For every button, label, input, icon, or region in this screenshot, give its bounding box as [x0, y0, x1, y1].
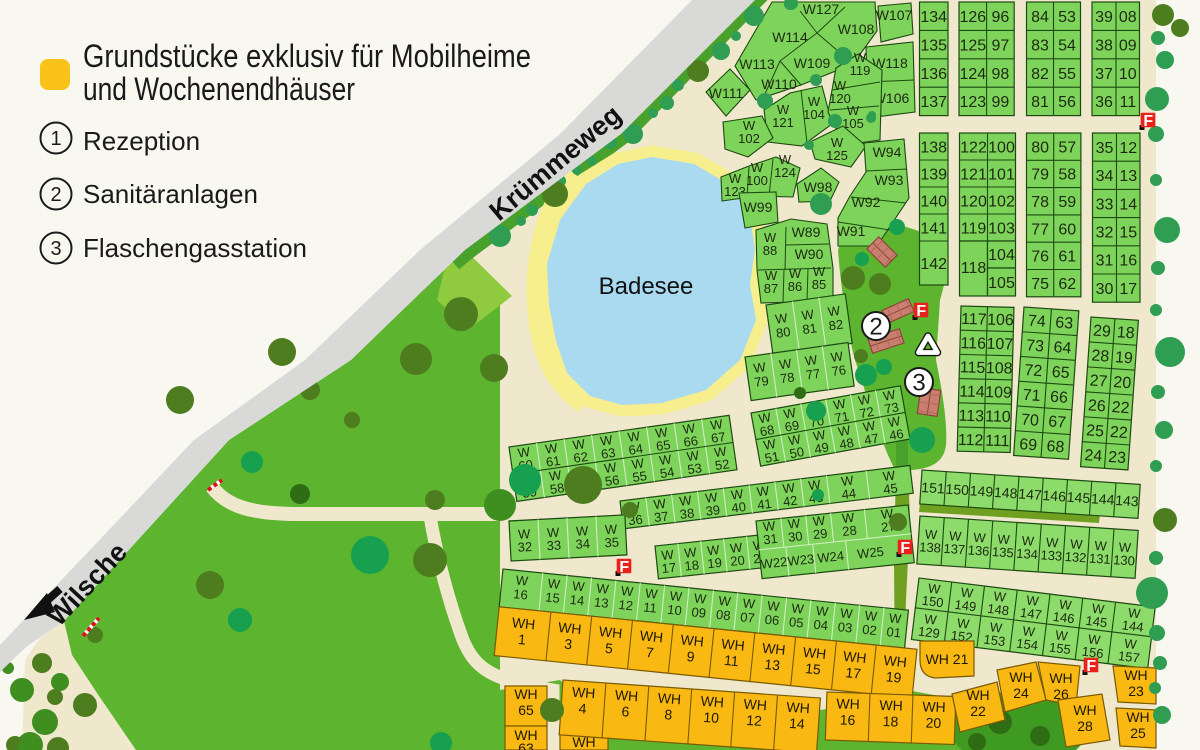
- svg-text:126: 126: [959, 9, 986, 26]
- svg-text:38: 38: [1095, 37, 1113, 54]
- svg-text:53: 53: [1058, 9, 1076, 26]
- svg-text:142: 142: [920, 256, 947, 273]
- svg-text:154: 154: [1016, 636, 1039, 654]
- svg-text:144: 144: [1091, 490, 1116, 508]
- svg-text:121: 121: [772, 115, 794, 130]
- svg-text:57: 57: [1058, 139, 1076, 156]
- svg-text:01: 01: [886, 624, 902, 640]
- svg-text:32: 32: [517, 539, 532, 555]
- svg-text:70: 70: [1020, 411, 1039, 429]
- svg-text:147: 147: [1019, 605, 1042, 623]
- svg-text:88: 88: [763, 243, 777, 258]
- svg-text:W114: W114: [772, 29, 808, 45]
- svg-text:145: 145: [1085, 613, 1108, 631]
- svg-text:80: 80: [775, 324, 791, 341]
- svg-text:W111: W111: [709, 85, 744, 101]
- svg-text:Rezeption: Rezeption: [83, 126, 200, 156]
- svg-text:W108: W108: [838, 21, 875, 37]
- svg-text:104: 104: [988, 247, 1015, 264]
- svg-text:WH: WH: [700, 693, 724, 711]
- svg-text:52: 52: [714, 456, 730, 473]
- svg-text:30: 30: [1096, 281, 1114, 298]
- svg-text:13: 13: [764, 656, 781, 674]
- svg-text:120: 120: [960, 193, 987, 210]
- svg-text:6: 6: [621, 703, 630, 720]
- svg-text:147: 147: [1018, 485, 1043, 503]
- svg-text:79: 79: [1031, 167, 1049, 184]
- svg-text:64: 64: [1053, 339, 1072, 357]
- svg-text:99: 99: [992, 94, 1010, 111]
- svg-text:117: 117: [961, 311, 987, 329]
- svg-text:W90: W90: [795, 246, 824, 262]
- svg-text:F: F: [619, 559, 629, 576]
- svg-text:WH: WH: [1009, 669, 1032, 685]
- svg-text:37: 37: [1095, 66, 1113, 83]
- svg-text:46: 46: [888, 426, 905, 443]
- svg-text:134: 134: [920, 9, 947, 26]
- svg-text:97: 97: [992, 37, 1010, 54]
- svg-text:WH: WH: [557, 619, 582, 637]
- svg-text:15: 15: [1119, 225, 1137, 242]
- svg-text:28: 28: [1077, 718, 1093, 734]
- svg-text:78: 78: [779, 369, 795, 386]
- svg-text:67: 67: [1048, 413, 1067, 431]
- svg-text:137: 137: [943, 541, 966, 557]
- svg-text:124: 124: [774, 165, 796, 180]
- svg-text:8: 8: [664, 706, 673, 723]
- svg-text:100: 100: [988, 139, 1015, 156]
- svg-text:138: 138: [919, 539, 942, 555]
- svg-text:02: 02: [862, 622, 878, 638]
- svg-text:F: F: [1143, 113, 1153, 130]
- svg-text:12: 12: [618, 597, 634, 613]
- svg-text:83: 83: [1031, 37, 1049, 54]
- svg-text:135: 135: [992, 544, 1015, 560]
- svg-text:124: 124: [959, 66, 986, 83]
- svg-text:29: 29: [1093, 323, 1112, 341]
- svg-text:65: 65: [518, 702, 534, 718]
- svg-text:und Wochenendhäuser: und Wochenendhäuser: [83, 71, 355, 107]
- svg-text:42: 42: [782, 493, 798, 510]
- svg-text:WH: WH: [1073, 702, 1096, 718]
- svg-text:08: 08: [715, 607, 731, 623]
- svg-text:80: 80: [1031, 139, 1049, 156]
- svg-text:141: 141: [920, 220, 947, 237]
- svg-text:32: 32: [1096, 225, 1114, 242]
- svg-text:139: 139: [920, 166, 947, 183]
- svg-text:119: 119: [961, 220, 987, 237]
- svg-text:58: 58: [1058, 167, 1076, 184]
- svg-text:41: 41: [756, 496, 772, 513]
- svg-text:20: 20: [1113, 374, 1132, 392]
- svg-text:77: 77: [805, 366, 821, 383]
- svg-text:W22: W22: [760, 554, 788, 572]
- svg-text:125: 125: [826, 148, 848, 163]
- svg-text:103: 103: [988, 220, 1015, 237]
- svg-text:101: 101: [988, 166, 1015, 183]
- svg-text:106: 106: [987, 312, 1014, 330]
- svg-text:96: 96: [992, 9, 1010, 26]
- svg-text:W110: W110: [761, 76, 797, 92]
- svg-text:82: 82: [1031, 66, 1049, 83]
- svg-text:102: 102: [988, 193, 1015, 210]
- svg-text:14: 14: [1119, 196, 1137, 213]
- svg-text:11: 11: [1119, 94, 1136, 111]
- svg-text:39: 39: [705, 502, 721, 519]
- svg-text:44: 44: [841, 485, 857, 502]
- svg-text:51: 51: [763, 448, 780, 465]
- svg-text:WH: WH: [514, 686, 537, 702]
- svg-text:31: 31: [1096, 253, 1114, 270]
- svg-text:19: 19: [707, 555, 723, 571]
- svg-text:133: 133: [1040, 547, 1063, 563]
- svg-text:WH: WH: [922, 698, 946, 715]
- svg-text:W24: W24: [817, 548, 845, 566]
- svg-text:121: 121: [960, 166, 987, 183]
- svg-text:W92: W92: [852, 194, 881, 210]
- svg-text:2: 2: [50, 184, 61, 206]
- svg-text:150: 150: [945, 481, 970, 499]
- svg-text:Grundstücke exklusiv für Mobil: Grundstücke exklusiv für Mobilheime: [83, 38, 531, 74]
- svg-text:07: 07: [740, 609, 756, 625]
- svg-text:20: 20: [730, 552, 746, 568]
- svg-text:WH: WH: [786, 699, 810, 717]
- svg-text:WH: WH: [1126, 709, 1149, 725]
- svg-text:38: 38: [679, 505, 695, 522]
- svg-text:145: 145: [1066, 489, 1091, 507]
- svg-text:63: 63: [518, 740, 534, 750]
- svg-text:15: 15: [804, 660, 821, 678]
- svg-text:25: 25: [1086, 422, 1105, 440]
- svg-text:F: F: [916, 303, 926, 320]
- svg-text:28: 28: [842, 523, 858, 539]
- svg-text:16: 16: [1119, 253, 1137, 270]
- svg-text:W127: W127: [803, 1, 840, 17]
- svg-text:Badesee: Badesee: [599, 273, 694, 300]
- svg-text:118: 118: [961, 260, 987, 277]
- svg-text:16: 16: [513, 586, 529, 602]
- svg-text:61: 61: [1058, 249, 1076, 266]
- svg-text:143: 143: [1115, 492, 1140, 510]
- svg-text:W25: W25: [856, 544, 884, 562]
- svg-text:22: 22: [970, 703, 986, 719]
- svg-text:WH: WH: [1124, 667, 1147, 683]
- svg-text:132: 132: [1064, 549, 1087, 565]
- svg-text:30: 30: [787, 528, 803, 544]
- svg-text:WH: WH: [1049, 670, 1072, 686]
- svg-text:146: 146: [1042, 487, 1067, 505]
- svg-text:34: 34: [1096, 168, 1114, 185]
- svg-text:55: 55: [631, 468, 647, 485]
- svg-text:23: 23: [1128, 683, 1144, 699]
- svg-text:150: 150: [921, 593, 944, 611]
- svg-text:F: F: [900, 540, 910, 557]
- svg-text:119: 119: [850, 63, 871, 78]
- svg-text:144: 144: [1121, 617, 1144, 635]
- svg-text:102: 102: [738, 131, 760, 146]
- svg-text:136: 136: [967, 542, 990, 558]
- svg-text:148: 148: [987, 601, 1010, 619]
- svg-text:25: 25: [1130, 725, 1146, 741]
- svg-text:03: 03: [837, 619, 853, 635]
- svg-text:72: 72: [1024, 362, 1043, 380]
- svg-text:10: 10: [703, 709, 720, 726]
- svg-text:WH: WH: [614, 687, 638, 705]
- svg-text:135: 135: [920, 37, 947, 54]
- svg-text:76: 76: [831, 362, 847, 379]
- svg-text:140: 140: [920, 193, 947, 210]
- svg-text:112: 112: [958, 432, 984, 450]
- svg-text:54: 54: [1058, 37, 1076, 54]
- svg-text:116: 116: [960, 335, 986, 353]
- svg-text:4: 4: [578, 700, 587, 717]
- svg-text:53: 53: [686, 460, 702, 477]
- svg-text:3: 3: [912, 369, 925, 396]
- svg-text:09: 09: [1119, 37, 1137, 54]
- svg-text:115: 115: [960, 359, 986, 377]
- svg-text:28: 28: [1091, 347, 1110, 365]
- svg-text:84: 84: [1031, 9, 1049, 26]
- svg-text:55: 55: [1058, 66, 1076, 83]
- svg-text:66: 66: [1049, 389, 1068, 407]
- svg-text:81: 81: [801, 320, 817, 337]
- svg-text:W98: W98: [804, 179, 833, 195]
- svg-text:WH: WH: [511, 614, 536, 632]
- svg-text:74: 74: [1027, 313, 1046, 331]
- svg-text:15: 15: [545, 589, 561, 605]
- svg-text:54: 54: [659, 464, 675, 481]
- svg-text:114: 114: [959, 383, 985, 401]
- svg-text:05: 05: [788, 614, 804, 630]
- svg-text:110: 110: [985, 408, 1011, 426]
- svg-text:100: 100: [746, 173, 768, 188]
- svg-text:33: 33: [1096, 196, 1114, 213]
- svg-text:W94: W94: [873, 144, 902, 160]
- svg-text:06: 06: [764, 612, 780, 628]
- svg-text:129: 129: [917, 624, 940, 642]
- svg-text:2: 2: [869, 313, 882, 340]
- svg-text:WH 21: WH 21: [926, 651, 969, 667]
- svg-text:78: 78: [1031, 194, 1049, 211]
- svg-text:148: 148: [994, 484, 1019, 502]
- svg-text:122: 122: [960, 139, 987, 156]
- svg-text:20: 20: [925, 714, 941, 731]
- svg-text:27: 27: [1089, 372, 1108, 390]
- svg-text:76: 76: [1031, 249, 1049, 266]
- svg-text:F: F: [1086, 658, 1096, 675]
- svg-text:11: 11: [723, 652, 739, 669]
- svg-text:WH: WH: [657, 690, 681, 708]
- svg-text:17: 17: [1119, 281, 1137, 298]
- svg-text:Flaschengasstation: Flaschengasstation: [83, 233, 307, 263]
- svg-text:18: 18: [882, 713, 898, 730]
- svg-text:WH: WH: [598, 623, 623, 641]
- svg-text:13: 13: [1119, 168, 1137, 185]
- svg-text:W91: W91: [837, 223, 866, 239]
- svg-text:137: 137: [920, 94, 947, 111]
- svg-text:14: 14: [569, 592, 585, 608]
- svg-text:87: 87: [764, 281, 778, 296]
- svg-text:3: 3: [50, 238, 61, 260]
- svg-text:113: 113: [958, 408, 984, 426]
- svg-text:14: 14: [789, 715, 806, 732]
- svg-text:149: 149: [969, 482, 994, 500]
- svg-text:10: 10: [1119, 66, 1137, 83]
- svg-text:58: 58: [549, 480, 565, 497]
- svg-text:65: 65: [1051, 364, 1070, 382]
- svg-text:109: 109: [985, 384, 1012, 402]
- svg-text:1: 1: [50, 128, 61, 150]
- svg-text:16: 16: [839, 711, 855, 728]
- svg-text:111: 111: [985, 433, 1010, 451]
- svg-text:29: 29: [812, 526, 828, 542]
- svg-text:W89: W89: [792, 224, 821, 240]
- svg-text:39: 39: [1095, 9, 1113, 26]
- svg-text:85: 85: [812, 277, 826, 292]
- svg-text:81: 81: [1031, 94, 1049, 111]
- svg-text:71: 71: [1022, 387, 1041, 405]
- svg-text:WH: WH: [966, 687, 989, 703]
- svg-text:82: 82: [828, 317, 844, 334]
- svg-text:108: 108: [986, 360, 1013, 378]
- svg-text:10: 10: [667, 602, 683, 618]
- svg-text:26: 26: [1087, 397, 1106, 415]
- svg-text:22: 22: [1111, 399, 1130, 417]
- svg-text:WH: WH: [639, 627, 664, 645]
- svg-text:35: 35: [604, 534, 619, 550]
- svg-text:33: 33: [546, 538, 561, 554]
- svg-text:11: 11: [643, 599, 658, 615]
- svg-text:12: 12: [746, 712, 763, 729]
- svg-text:63: 63: [1055, 314, 1074, 332]
- svg-text:79: 79: [753, 373, 769, 390]
- svg-text:Sanitäranlagen: Sanitäranlagen: [83, 179, 258, 209]
- svg-text:W107: W107: [876, 7, 913, 23]
- svg-text:151: 151: [921, 479, 946, 497]
- svg-text:24: 24: [1084, 447, 1103, 465]
- svg-text:77: 77: [1031, 221, 1049, 238]
- svg-text:40: 40: [731, 499, 747, 516]
- svg-text:12: 12: [1119, 140, 1137, 157]
- svg-text:56: 56: [604, 472, 620, 489]
- svg-text:50: 50: [788, 444, 805, 461]
- svg-text:149: 149: [954, 597, 977, 615]
- svg-text:47: 47: [863, 430, 880, 447]
- svg-text:62: 62: [1058, 276, 1076, 293]
- svg-text:17: 17: [845, 664, 862, 682]
- svg-text:19: 19: [1115, 349, 1134, 367]
- svg-text:155: 155: [1048, 640, 1071, 658]
- svg-text:123: 123: [959, 94, 986, 111]
- svg-text:107: 107: [986, 336, 1013, 354]
- svg-text:105: 105: [988, 275, 1015, 292]
- svg-text:13: 13: [593, 594, 609, 610]
- svg-text:104: 104: [803, 107, 825, 122]
- svg-text:86: 86: [788, 279, 802, 294]
- svg-text:18: 18: [1116, 324, 1135, 342]
- svg-text:WH: WH: [836, 695, 860, 712]
- svg-text:24: 24: [1013, 685, 1029, 701]
- svg-text:34: 34: [575, 536, 590, 552]
- svg-text:48: 48: [838, 435, 855, 452]
- svg-text:45: 45: [882, 480, 898, 497]
- svg-text:136: 136: [920, 66, 947, 83]
- svg-text:37: 37: [653, 508, 669, 525]
- svg-text:56: 56: [1058, 94, 1076, 111]
- svg-text:49: 49: [813, 439, 830, 456]
- svg-text:22: 22: [1109, 424, 1128, 442]
- svg-text:157: 157: [1117, 648, 1140, 666]
- svg-text:73: 73: [1026, 337, 1045, 355]
- svg-text:09: 09: [691, 604, 707, 620]
- svg-text:36: 36: [1095, 94, 1113, 111]
- svg-text:08: 08: [1119, 9, 1137, 26]
- svg-text:18: 18: [684, 557, 700, 573]
- svg-text:138: 138: [920, 139, 947, 156]
- svg-text:W113: W113: [739, 56, 775, 72]
- svg-text:68: 68: [1046, 438, 1065, 456]
- svg-text:17: 17: [661, 560, 677, 576]
- svg-text:W23: W23: [787, 551, 815, 569]
- svg-text:130: 130: [1113, 552, 1136, 568]
- svg-text:04: 04: [813, 617, 829, 633]
- svg-text:W99: W99: [744, 199, 773, 215]
- svg-text:75: 75: [1031, 276, 1049, 293]
- svg-text:146: 146: [1052, 609, 1075, 627]
- svg-text:69: 69: [1019, 436, 1038, 454]
- svg-text:60: 60: [1058, 221, 1076, 238]
- svg-text:125: 125: [959, 37, 986, 54]
- svg-text:153: 153: [983, 632, 1006, 650]
- svg-text:23: 23: [1108, 449, 1127, 467]
- svg-text:98: 98: [992, 66, 1010, 83]
- svg-text:WH: WH: [680, 631, 705, 649]
- svg-text:W109: W109: [794, 55, 831, 71]
- svg-text:131: 131: [1089, 551, 1112, 567]
- svg-text:WH: WH: [743, 696, 767, 714]
- svg-text:WH: WH: [879, 697, 903, 714]
- svg-text:59: 59: [1058, 194, 1076, 211]
- svg-text:WH: WH: [571, 684, 595, 702]
- svg-text:19: 19: [885, 668, 902, 686]
- svg-text:31: 31: [762, 531, 778, 547]
- svg-text:35: 35: [1096, 140, 1114, 157]
- svg-text:134: 134: [1016, 546, 1039, 562]
- svg-text:W93: W93: [875, 172, 904, 188]
